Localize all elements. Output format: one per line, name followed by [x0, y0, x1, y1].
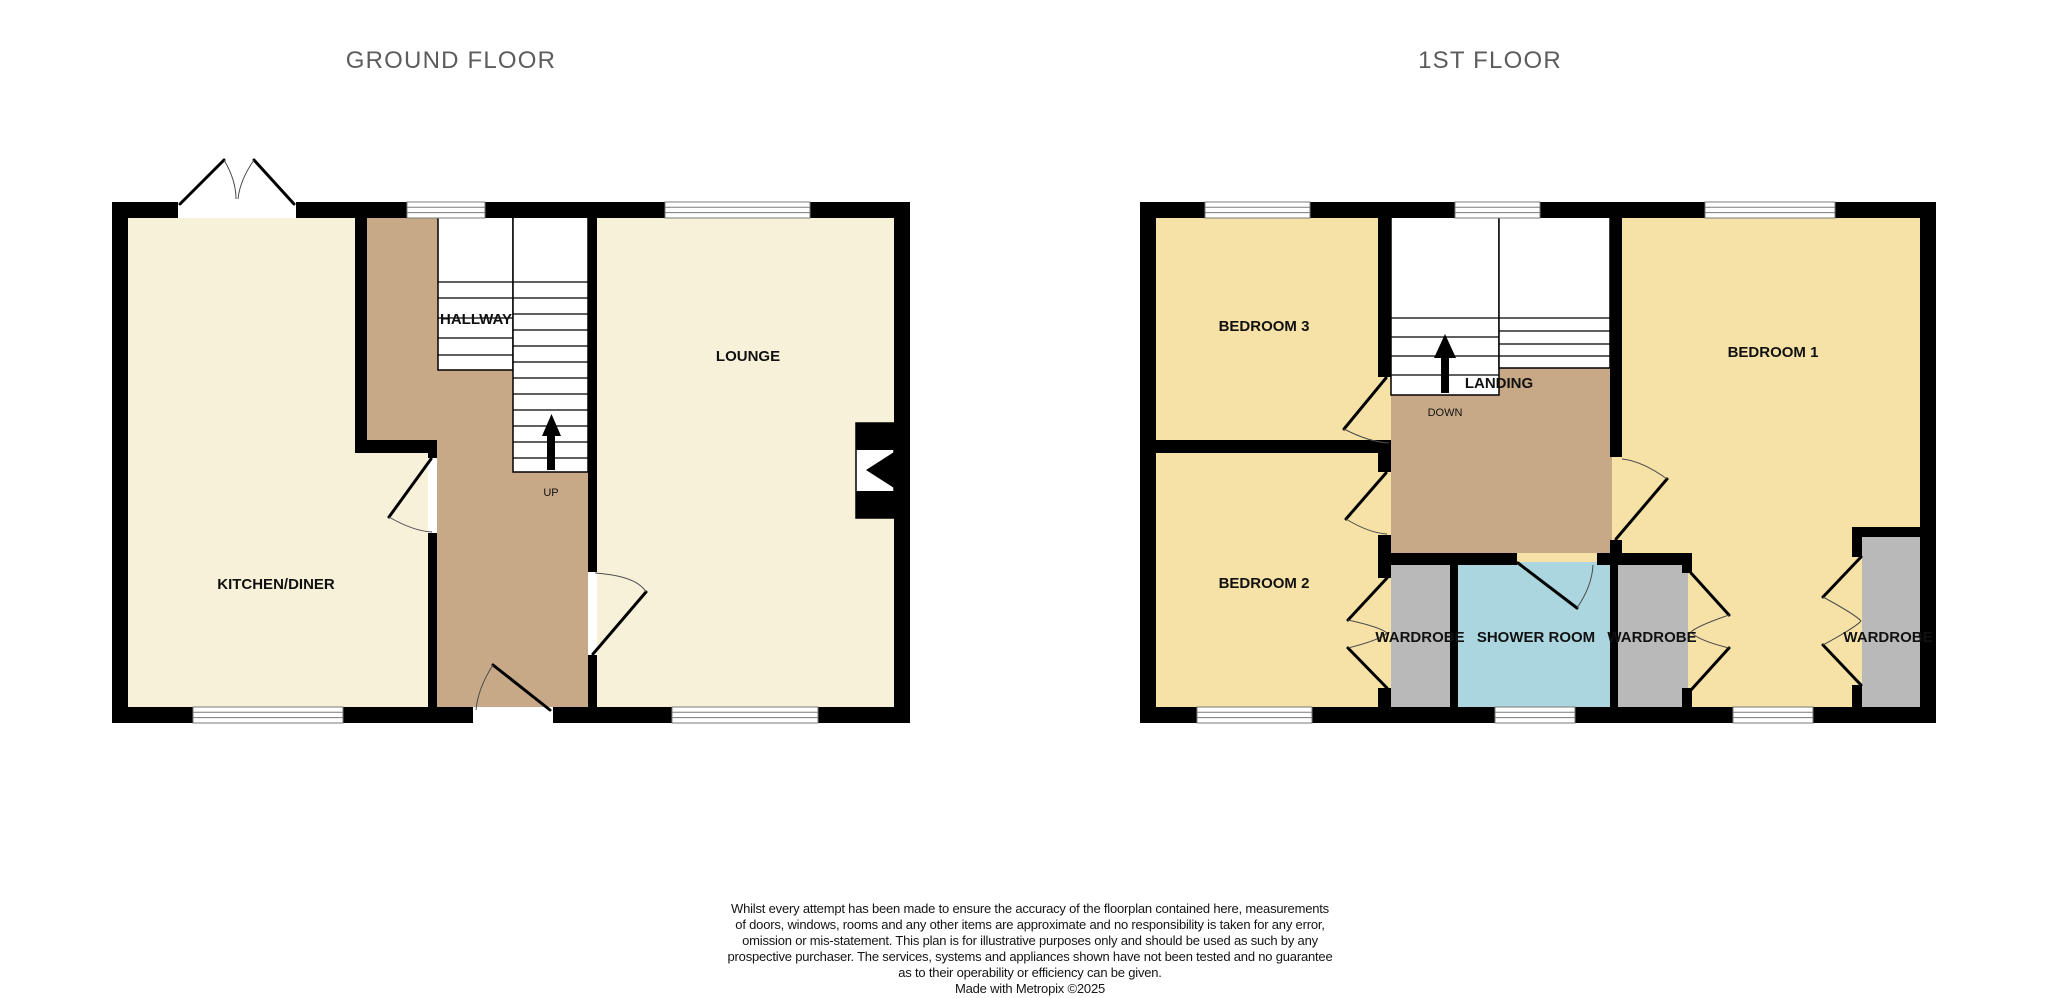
disclaimer-line-2: of doors, windows, rooms and any other i… [735, 917, 1324, 932]
wardrobe-bedroom1-inner-label: WARDROBE [1607, 629, 1696, 646]
landing-label: LANDING [1465, 375, 1533, 392]
wall-stub-bed2-bottom [1378, 688, 1391, 707]
bedroom1-label: BEDROOM 1 [1728, 344, 1819, 361]
wall-hall-lounge-upper [588, 218, 597, 572]
hallway-label: HALLWAY [440, 311, 512, 328]
first-floor-plan: 1ST FLOOR [1140, 47, 1936, 723]
wall-stub-ward-inner-top [1682, 553, 1692, 573]
disclaimer-line-5: as to their operability or efficiency ca… [898, 965, 1161, 980]
window-top-bed3 [1205, 202, 1310, 218]
wall-stub-bed2-top [1378, 453, 1391, 472]
down-arrow-shaft [1441, 354, 1449, 393]
kitchen-diner-label: KITCHEN/DINER [217, 576, 335, 593]
wall-ward-right-top [1852, 527, 1920, 537]
window-bottom-kitchen [193, 707, 343, 723]
stair-flight-left [438, 212, 513, 370]
hallway-upper-area [365, 218, 440, 442]
first-floor-title: 1ST FLOOR [1418, 47, 1562, 74]
outer-wall-right [894, 202, 910, 723]
shower-room-label: SHOWER ROOM [1477, 629, 1595, 646]
wall-bed3-bed2 [1156, 440, 1391, 453]
wall-bed3-landing [1378, 218, 1391, 377]
wall-kitchen-hall-lower [428, 533, 437, 707]
wall-stub-ward-right-top [1852, 537, 1862, 557]
wardrobe-bedroom1-right-label: WARDROBE [1843, 629, 1932, 646]
up-label: UP [543, 487, 558, 499]
disclaimer-line-4: prospective purchaser. The services, sys… [728, 949, 1333, 964]
window-top-stairwell [1455, 202, 1540, 218]
wall-kitchen-hall-jog [355, 440, 437, 453]
up-arrow-shaft [547, 432, 555, 470]
disclaimer-line-6: Made with Metropix ©2025 [955, 981, 1105, 996]
french-doors [180, 160, 294, 204]
window-bottom-lounge [672, 707, 818, 723]
wardrobe-bedroom1-right [1862, 537, 1920, 707]
ground-floor-plan: GROUND FLOOR [112, 47, 910, 723]
bedroom2-label: BEDROOM 2 [1219, 575, 1310, 592]
window-top-bed1 [1705, 202, 1835, 218]
window-bottom-bed2 [1197, 707, 1312, 723]
window-bottom-bed1 [1733, 707, 1813, 723]
french-door-opening [178, 202, 296, 218]
down-label: DOWN [1428, 407, 1463, 419]
outer-wall-left-first [1140, 202, 1156, 723]
wall-stub-bed1-door [1610, 540, 1622, 565]
window-top-stairs [407, 202, 485, 218]
first-staircase [1391, 212, 1610, 395]
lounge-label: LOUNGE [716, 348, 780, 365]
window-bottom-shower [1495, 707, 1575, 723]
disclaimer-text: Whilst every attempt has been made to en… [728, 901, 1333, 996]
ground-floor-title: GROUND FLOOR [346, 47, 556, 74]
fireplace [856, 423, 894, 518]
lounge-room [597, 218, 894, 707]
wall-stub-ward-right-bottom [1852, 685, 1862, 707]
wall-landing-bed1 [1610, 218, 1622, 457]
bedroom3-label: BEDROOM 3 [1219, 318, 1310, 335]
window-top-lounge [665, 202, 810, 218]
disclaimer-line-3: omission or mis-statement. This plan is … [742, 933, 1319, 948]
disclaimer-line-1: Whilst every attempt has been made to en… [731, 901, 1330, 916]
wardrobe-bedroom2-label: WARDROBE [1375, 629, 1464, 646]
floorplan-canvas: GROUND FLOOR [0, 0, 2048, 998]
wall-hall-lounge-lower [588, 655, 597, 707]
outer-wall-left [112, 202, 128, 723]
front-door-opening [473, 707, 553, 723]
wall-kitchen-hall-stub [428, 453, 437, 458]
wall-kitchen-hall-upper [355, 218, 367, 442]
